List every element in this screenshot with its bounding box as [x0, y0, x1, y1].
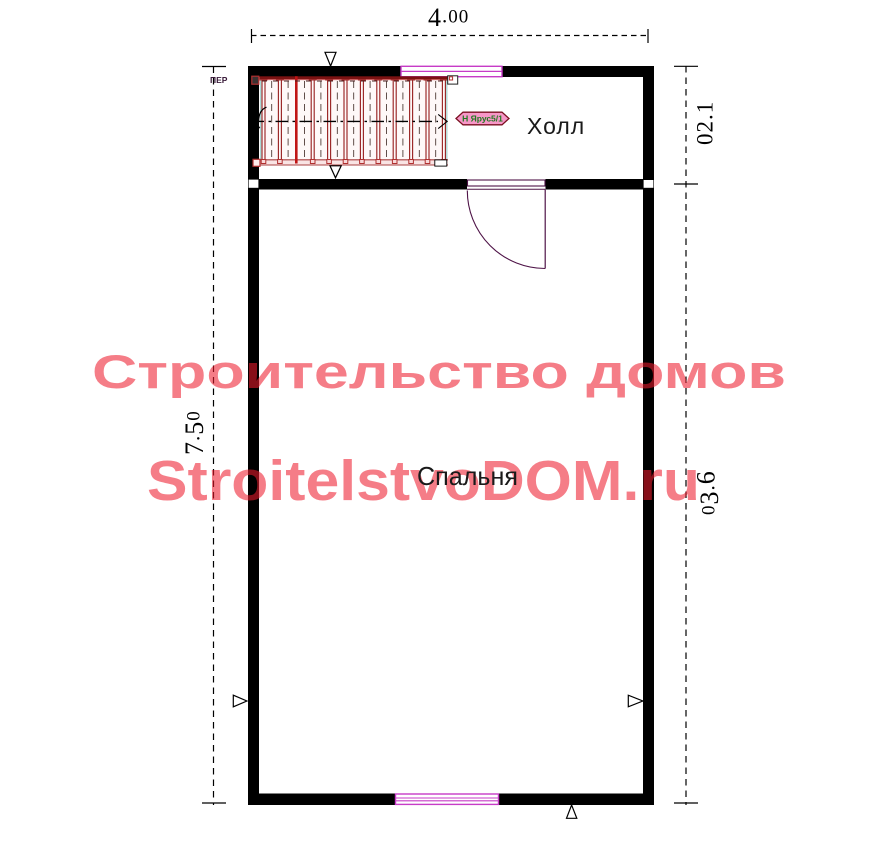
svg-text:02.1: 02.1: [693, 101, 718, 145]
svg-text:Спальня: Спальня: [417, 461, 518, 491]
svg-text:Строительство домов: Строительство домов: [92, 345, 786, 398]
svg-text:ПЕР: ПЕР: [210, 75, 228, 85]
svg-text:Холл: Холл: [527, 113, 585, 139]
svg-text:Н Ярус5/1: Н Ярус5/1: [462, 114, 503, 124]
